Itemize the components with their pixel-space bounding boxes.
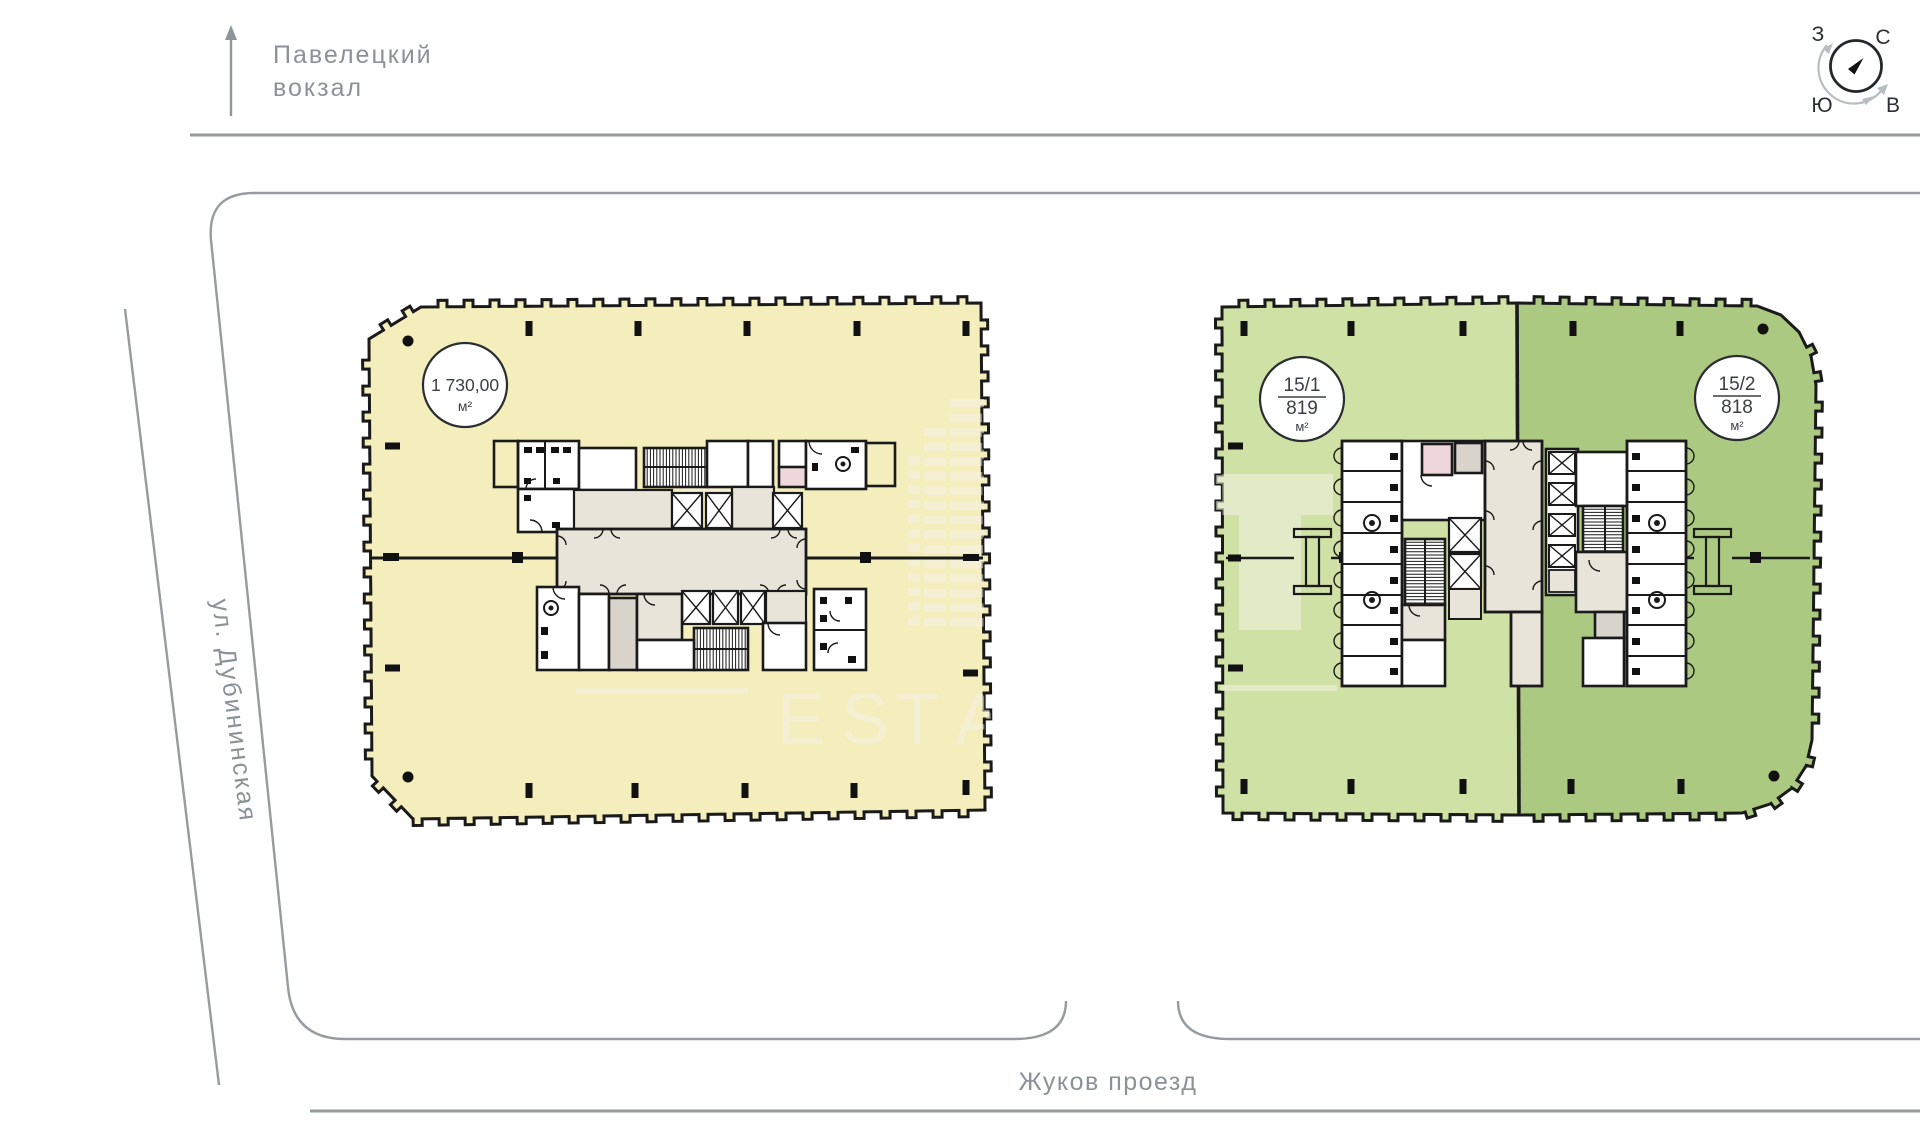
svg-text:T: T [895,680,939,760]
svg-text:819: 819 [1286,398,1318,419]
svg-text:818: 818 [1721,397,1753,418]
svg-text:м²: м² [1730,418,1744,433]
svg-text:В: В [1886,94,1900,117]
svg-text:E: E [777,680,825,760]
svg-text:Павелецкий: Павелецкий [273,41,433,69]
svg-text:15/2: 15/2 [1719,374,1756,395]
svg-text:Ю: Ю [1811,94,1832,117]
svg-text:З: З [1812,23,1825,46]
svg-text:15/1: 15/1 [1284,375,1321,396]
svg-text:S: S [841,680,889,760]
svg-text:С: С [1875,26,1890,49]
svg-text:Жуков проезд: Жуков проезд [1019,1068,1198,1096]
svg-text:1 730,00: 1 730,00 [431,375,499,395]
svg-text:м²: м² [458,398,473,414]
svg-text:вокзал: вокзал [273,74,363,102]
svg-text:м²: м² [1295,419,1309,434]
